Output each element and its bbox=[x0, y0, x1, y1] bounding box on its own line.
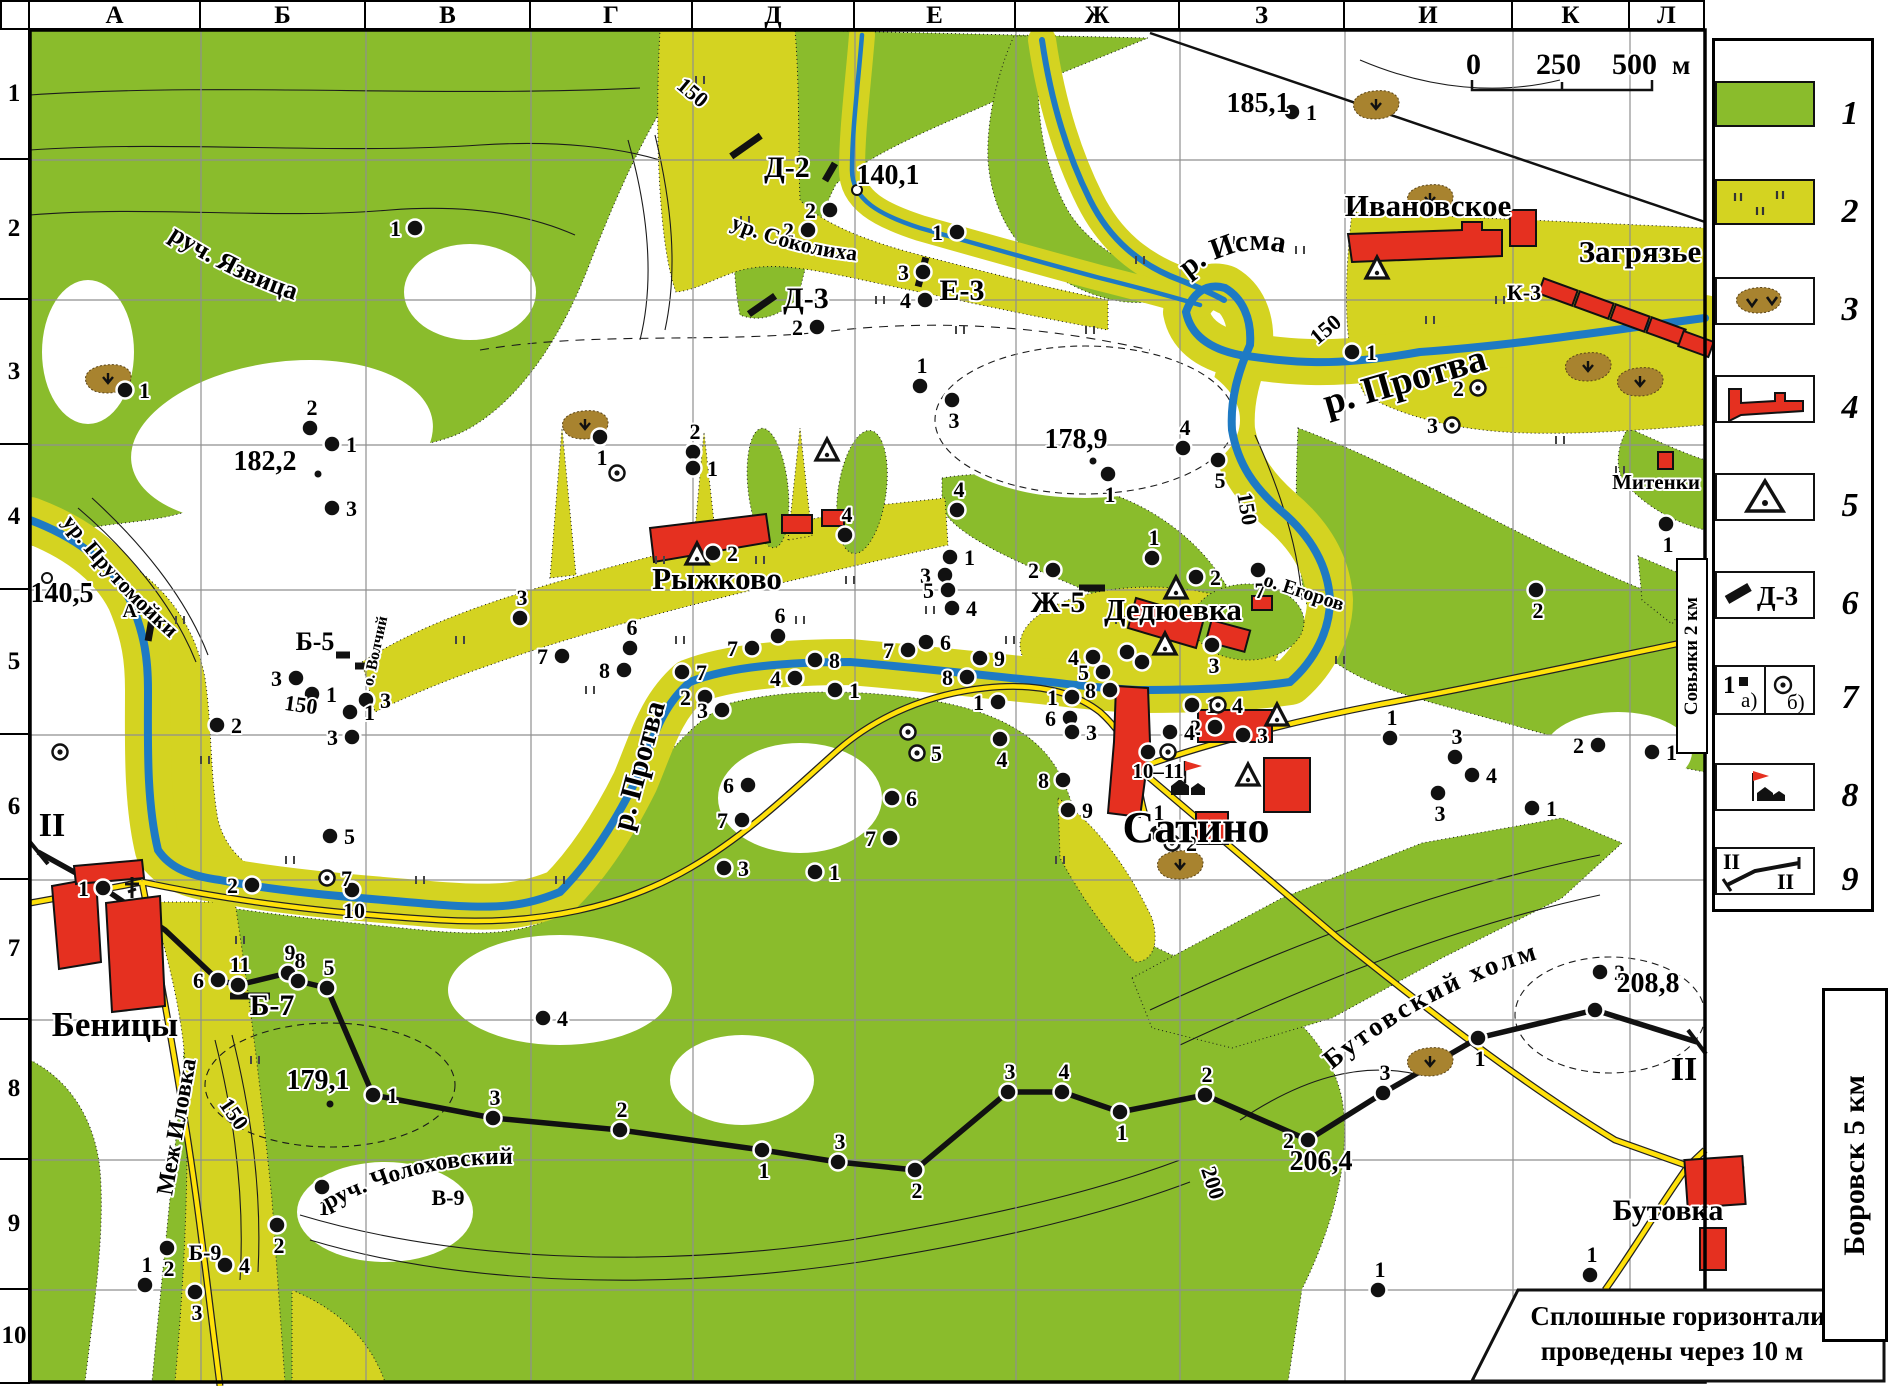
row-header-1: 1 bbox=[0, 30, 30, 160]
survey-dot bbox=[1144, 550, 1161, 567]
survey-dot-number: 11 bbox=[230, 952, 251, 977]
survey-dot bbox=[1464, 767, 1481, 784]
survey-dot bbox=[959, 669, 976, 686]
survey-dot bbox=[324, 500, 341, 517]
survey-dot-number: 10 bbox=[343, 898, 365, 923]
survey-dot-number: 3 bbox=[517, 585, 528, 610]
profile-swatch: IIII bbox=[1729, 857, 1829, 903]
survey-dot bbox=[1524, 800, 1541, 817]
circle-dot-number: 3 bbox=[1427, 413, 1438, 438]
survey-dot bbox=[714, 702, 731, 719]
survey-dot bbox=[485, 1110, 502, 1127]
survey-dot bbox=[830, 1154, 847, 1171]
survey-dot-number: 1 bbox=[759, 1158, 770, 1183]
site-code-label: Е-3 bbox=[940, 274, 985, 307]
survey-dot-number: 2 bbox=[805, 198, 816, 223]
survey-dot bbox=[1470, 1030, 1487, 1047]
legend-num-5: 5 bbox=[1829, 487, 1871, 525]
survey-dot bbox=[1250, 562, 1267, 579]
survey-dot bbox=[1000, 1084, 1017, 1101]
legend-num-8: 8 bbox=[1829, 777, 1871, 815]
grid-corner bbox=[0, 0, 30, 30]
col-header-b: Б bbox=[201, 0, 366, 30]
survey-dot-number: 6 bbox=[627, 615, 638, 640]
note-line-2: проведены через 10 м bbox=[1541, 1336, 1804, 1366]
geodetic-point-dot bbox=[1375, 271, 1379, 275]
survey-dot bbox=[209, 717, 226, 734]
survey-dot-number: 2 bbox=[274, 1233, 285, 1258]
survey-dot-number: 1 bbox=[139, 378, 150, 403]
survey-dot-number: 7 bbox=[865, 826, 876, 851]
legend-num-9: 9 bbox=[1829, 861, 1871, 899]
survey-dot-number: 4 bbox=[900, 288, 911, 313]
survey-dot bbox=[1134, 654, 1151, 671]
survey-dot-number: 4 bbox=[966, 596, 977, 621]
survey-dot-number: 6 bbox=[723, 773, 734, 798]
circle-dot-center bbox=[57, 749, 62, 754]
survey-dot-number: 6 bbox=[1045, 706, 1056, 731]
survey-dot bbox=[1055, 772, 1072, 789]
survey-dot bbox=[807, 652, 824, 669]
survey-dot-number: 2 bbox=[680, 685, 691, 710]
elevation-dot bbox=[327, 1101, 334, 1108]
row-header-3: 3 bbox=[0, 300, 30, 445]
row-header-9: 9 bbox=[0, 1160, 30, 1290]
survey-dot-number: 8 bbox=[1038, 768, 1049, 793]
circle-dot-number: 5 bbox=[931, 741, 942, 766]
survey-dot-number: 3 bbox=[1257, 723, 1268, 748]
survey-dot-number: 4 bbox=[954, 477, 965, 502]
legend-panel: 1 2 3 4 5 Д-3 6 1а)б) 7 8 IIII 9 bbox=[1712, 38, 1874, 912]
col-header-a: А bbox=[30, 0, 201, 30]
survey-dot bbox=[288, 670, 305, 687]
row-header-2: 2 bbox=[0, 160, 30, 300]
survey-dot-number: 1 bbox=[142, 1252, 153, 1277]
borovsk-direction-box: Боровск 5 км bbox=[1822, 988, 1888, 1342]
survey-dot bbox=[302, 420, 319, 437]
survey-dot bbox=[1207, 719, 1224, 736]
survey-dot bbox=[944, 600, 961, 617]
survey-dot bbox=[1140, 744, 1157, 761]
site-code-label: Д-2 bbox=[764, 151, 810, 184]
site-code-label: В-9 bbox=[432, 1185, 465, 1210]
survey-dot-number: 8 bbox=[295, 948, 306, 973]
topographic-map-page: IIII 12213421121311121134451241354212372… bbox=[0, 0, 1889, 1386]
survey-dot bbox=[1370, 1282, 1387, 1299]
survey-dot bbox=[1060, 802, 1077, 819]
survey-dot bbox=[754, 1142, 771, 1159]
survey-dot bbox=[622, 640, 639, 657]
legend-item-outcrop: Д-3 6 bbox=[1715, 571, 1871, 637]
legend-item-forest: 1 bbox=[1715, 81, 1871, 147]
survey-dot-number: 8 bbox=[829, 648, 840, 673]
survey-dot-number: 1 bbox=[1105, 482, 1116, 507]
survey-dot-number: 3 bbox=[1209, 653, 1220, 678]
survey-dot-number: 2 bbox=[617, 1097, 628, 1122]
elevation-label: 179,1 bbox=[287, 1065, 350, 1096]
col-header-d: Д bbox=[693, 0, 855, 30]
survey-dot bbox=[1658, 516, 1675, 533]
survey-dot bbox=[187, 1284, 204, 1301]
survey-dot-number: 1 bbox=[1587, 1242, 1598, 1267]
elevation-label: 182,2 bbox=[234, 446, 297, 477]
field-178-9 bbox=[930, 342, 1240, 498]
settlement-label: Беницы bbox=[52, 1005, 179, 1044]
row-header-4: 4 bbox=[0, 445, 30, 590]
survey-dot bbox=[1204, 637, 1221, 654]
legend-item-pit: 3 bbox=[1715, 277, 1871, 343]
col-header-e: Е bbox=[855, 0, 1016, 30]
survey-dot-number: 4 bbox=[997, 747, 1008, 772]
survey-dot bbox=[942, 549, 959, 566]
settlement-label: Митенки bbox=[1612, 470, 1700, 494]
survey-dot-number: 1 bbox=[1366, 340, 1377, 365]
survey-dot bbox=[1100, 466, 1117, 483]
survey-dot-number: 2 bbox=[307, 395, 318, 420]
survey-dot-number: 3 bbox=[271, 666, 282, 691]
settlement-label: Рыжково bbox=[652, 561, 782, 596]
survey-dot bbox=[1162, 724, 1179, 741]
survey-dot bbox=[365, 1087, 382, 1104]
legend-num-4: 4 bbox=[1829, 389, 1871, 427]
scale-unit: м bbox=[1672, 50, 1690, 80]
sovyaki-label: Совьяки 2 км bbox=[1681, 597, 1703, 715]
geodetic-point-dot bbox=[1163, 647, 1167, 651]
survey-dot bbox=[1184, 697, 1201, 714]
row-header-5: 5 bbox=[0, 590, 30, 735]
survey-dot bbox=[1197, 1087, 1214, 1104]
settlement-label: Загрязье bbox=[1579, 234, 1702, 269]
survey-dot-number: 3 bbox=[1435, 801, 1446, 826]
survey-dot bbox=[322, 828, 339, 845]
survey-dot-number: 1 bbox=[346, 432, 357, 457]
circle-dot-number: 7 bbox=[341, 866, 352, 891]
survey-dot-number: 1 bbox=[1375, 1257, 1386, 1282]
survey-dot-number: 3 bbox=[697, 698, 708, 723]
survey-dot-number: 1 bbox=[1387, 705, 1398, 730]
survey-dot bbox=[95, 880, 112, 897]
survey-dot-number: 1 bbox=[707, 456, 718, 481]
survey-dot bbox=[884, 790, 901, 807]
survey-dot bbox=[407, 220, 424, 237]
survey-dot bbox=[319, 980, 336, 997]
survey-dot-number: 6 bbox=[906, 786, 917, 811]
survey-dot bbox=[342, 704, 359, 721]
survey-dot-number: 2 bbox=[792, 315, 803, 340]
outcrop-bar-icon bbox=[336, 652, 350, 659]
legend-item-meadow: 2 bbox=[1715, 179, 1871, 245]
survey-dot-number: 3 bbox=[835, 1129, 846, 1154]
survey-dot bbox=[244, 877, 261, 894]
survey-dot-number: 3 bbox=[898, 260, 909, 285]
survey-dot-number: 2 bbox=[690, 419, 701, 444]
row-header-10: 10 bbox=[0, 1290, 30, 1384]
survey-dot bbox=[616, 662, 633, 679]
survey-dot bbox=[1447, 749, 1464, 766]
borovsk-label: Боровск 5 км bbox=[1838, 1075, 1872, 1256]
survey-dot bbox=[907, 1162, 924, 1179]
survey-dot bbox=[210, 972, 227, 989]
survey-dot-number: 2 bbox=[227, 873, 238, 898]
survey-dot bbox=[949, 502, 966, 519]
contour-label: 150 bbox=[283, 690, 319, 719]
survey-dot-number: 1 bbox=[1475, 1046, 1486, 1071]
survey-dot-number: 1 bbox=[964, 545, 975, 570]
elevation-label: 206,4 bbox=[1290, 1146, 1353, 1177]
survey-dot-number: 5 bbox=[324, 955, 335, 980]
survey-dot bbox=[1344, 344, 1361, 361]
survey-dot-number: 7 bbox=[696, 660, 707, 685]
survey-dot bbox=[1112, 1104, 1129, 1121]
survey-dot bbox=[809, 319, 826, 336]
legend-b-label: б) bbox=[1787, 690, 1805, 714]
survey-dot bbox=[1054, 1084, 1071, 1101]
survey-dot bbox=[990, 694, 1007, 711]
legend-d3-label: Д-3 bbox=[1757, 581, 1798, 611]
survey-dot bbox=[290, 973, 307, 990]
profile-ii-start: II bbox=[39, 807, 65, 844]
legend-ii-start: II bbox=[1723, 849, 1740, 874]
legend-item-profile: IIII 9 bbox=[1715, 847, 1871, 913]
survey-dot-number: 7 bbox=[883, 638, 894, 663]
survey-dot-number: 9 bbox=[1082, 798, 1093, 823]
survey-dot bbox=[554, 648, 571, 665]
survey-dot-number: 1 bbox=[1306, 100, 1317, 125]
survey-dot-number: 3 bbox=[490, 1085, 501, 1110]
survey-dot bbox=[685, 460, 702, 477]
survey-dot bbox=[822, 202, 839, 219]
survey-dot bbox=[1587, 1002, 1604, 1019]
site-code-label: Д-3 bbox=[783, 282, 829, 315]
site-code-label: Б-7 bbox=[250, 989, 295, 1022]
survey-dot-number: 5 bbox=[344, 824, 355, 849]
survey-dot bbox=[1045, 562, 1062, 579]
legend-num-6: 6 bbox=[1829, 585, 1871, 623]
survey-dot-number: 1 bbox=[364, 700, 375, 725]
survey-dot-number: 6 bbox=[940, 630, 951, 655]
settlement-swatch bbox=[1729, 385, 1829, 431]
survey-dot bbox=[1210, 452, 1227, 469]
points-swatch: 1а)б) bbox=[1729, 675, 1829, 721]
survey-dot bbox=[269, 1217, 286, 1234]
survey-dot bbox=[1644, 744, 1661, 761]
survey-dot-number: 3 bbox=[1452, 724, 1463, 749]
survey-dot bbox=[1119, 644, 1136, 661]
survey-dot-number: 3 bbox=[1380, 1060, 1391, 1085]
scale-250: 250 bbox=[1536, 48, 1581, 81]
survey-dot-number: 1 bbox=[917, 353, 928, 378]
survey-dot bbox=[972, 650, 989, 667]
camp-swatch bbox=[1729, 773, 1829, 819]
survey-dot bbox=[940, 582, 957, 599]
survey-dot-number: 1 bbox=[326, 682, 337, 707]
survey-dot bbox=[674, 664, 691, 681]
scale-500: 500 bbox=[1612, 48, 1657, 81]
survey-dot-number: 1 bbox=[1149, 525, 1160, 550]
survey-dot-number: 3 bbox=[346, 496, 357, 521]
column-header: А Б В Г Д Е Ж З И К Л bbox=[0, 0, 1705, 30]
col-header-g: Г bbox=[531, 0, 693, 30]
survey-dot bbox=[912, 378, 929, 395]
survey-dot bbox=[1582, 1267, 1599, 1284]
legend-item-settlement: 4 bbox=[1715, 375, 1871, 441]
survey-dot bbox=[324, 436, 341, 453]
survey-dot bbox=[917, 292, 934, 309]
geodetic-point-dot bbox=[1246, 778, 1250, 782]
row-header-7: 7 bbox=[0, 880, 30, 1020]
survey-dot bbox=[535, 1010, 552, 1027]
circle-dot-center bbox=[1449, 422, 1454, 427]
col-header-z: З bbox=[1180, 0, 1345, 30]
survey-dot bbox=[949, 224, 966, 241]
circle-dot-center bbox=[1215, 702, 1220, 707]
survey-dot-number: 7 bbox=[717, 808, 728, 833]
survey-dot-number: 4 bbox=[1486, 763, 1497, 788]
survey-dot-number: 4 bbox=[770, 666, 781, 691]
site-code-label: К-3 bbox=[1507, 280, 1541, 305]
col-header-i: И bbox=[1345, 0, 1513, 30]
survey-dot-number: 2 bbox=[1533, 598, 1544, 623]
survey-dot-number: 4 bbox=[557, 1006, 568, 1031]
survey-dot-number: 3 bbox=[192, 1300, 203, 1325]
settlement-label: Сатино bbox=[1123, 803, 1270, 852]
survey-dot bbox=[1102, 682, 1119, 699]
survey-dot bbox=[137, 1277, 154, 1294]
survey-dot-number: 2 bbox=[1202, 1062, 1213, 1087]
settlement-label: Бутовка bbox=[1613, 1194, 1724, 1227]
site-code-label: Б-5 bbox=[296, 627, 335, 656]
survey-dot bbox=[230, 977, 247, 994]
survey-dot-number: 2 bbox=[1573, 733, 1584, 758]
legend-point-number: 1 bbox=[1723, 672, 1736, 699]
survey-dot bbox=[716, 860, 733, 877]
survey-dot bbox=[1235, 727, 1252, 744]
legend-item-base-camp: 8 bbox=[1715, 763, 1871, 829]
survey-dot-number: 1 bbox=[932, 220, 943, 245]
map-canvas: IIII 12213421121311121134451241354212372… bbox=[0, 0, 1889, 1386]
legend-item-points: 1а)б) 7 bbox=[1715, 665, 1871, 731]
survey-dot-number: 4 bbox=[239, 1253, 250, 1278]
survey-dot bbox=[827, 682, 844, 699]
survey-dot bbox=[740, 777, 757, 794]
legend-item-geodetic-point: 5 bbox=[1715, 473, 1871, 539]
survey-dot bbox=[1064, 689, 1081, 706]
triangle-swatch bbox=[1729, 483, 1829, 529]
survey-dot-number: 1 bbox=[387, 1083, 398, 1108]
scale-0: 0 bbox=[1466, 48, 1481, 81]
site-code-label: Б-9 bbox=[189, 1240, 222, 1265]
legend-num-7: 7 bbox=[1829, 679, 1871, 717]
survey-dot-number: 3 bbox=[380, 688, 391, 713]
survey-dot bbox=[592, 429, 609, 446]
elevation-label: 140,1 bbox=[857, 160, 920, 191]
legend-num-3: 3 bbox=[1829, 291, 1871, 329]
row-header-6: 6 bbox=[0, 735, 30, 880]
settlement-label: Дедюевка bbox=[1104, 592, 1242, 627]
survey-dot bbox=[512, 610, 529, 627]
elevation-dot bbox=[315, 471, 322, 478]
survey-dot bbox=[1095, 664, 1112, 681]
survey-dot-number: 2 bbox=[1028, 558, 1039, 583]
survey-dot bbox=[1592, 964, 1609, 981]
elevation-dot bbox=[1090, 458, 1097, 465]
survey-dot bbox=[915, 264, 932, 281]
elevation-label: 140,5 bbox=[31, 578, 94, 609]
survey-dot-number: 2 bbox=[912, 1178, 923, 1203]
survey-dot-number: 7 bbox=[727, 636, 738, 661]
survey-dot-number: 2 bbox=[1210, 565, 1221, 590]
survey-dot bbox=[612, 1122, 629, 1139]
survey-dot-number: 1 bbox=[597, 445, 608, 470]
pit-swatch bbox=[1729, 287, 1829, 333]
survey-dot-number: 3 bbox=[1086, 720, 1097, 745]
survey-dot bbox=[1175, 440, 1192, 457]
legend-a-label: а) bbox=[1741, 688, 1757, 712]
legend-ii-end: II bbox=[1777, 869, 1794, 894]
survey-dot bbox=[117, 382, 134, 399]
survey-dot bbox=[705, 545, 722, 562]
survey-dot-number: 2 bbox=[164, 1256, 175, 1281]
survey-dot-number: 4 bbox=[842, 502, 853, 527]
survey-dot bbox=[882, 830, 899, 847]
survey-dot-number: 4 bbox=[1180, 415, 1191, 440]
survey-dot-number: 6 bbox=[775, 603, 786, 628]
survey-dot-number: 3 bbox=[949, 408, 960, 433]
legend-num-2: 2 bbox=[1829, 193, 1871, 231]
survey-dot bbox=[1375, 1085, 1392, 1102]
survey-dot bbox=[1430, 785, 1447, 802]
survey-dot-number: 4 bbox=[1184, 720, 1195, 745]
circle-dot-number: 4 bbox=[1232, 693, 1243, 718]
elevation-label: 178,9 bbox=[1045, 424, 1108, 455]
note-line-1: Сплошные горизонтали bbox=[1530, 1301, 1825, 1331]
circle-dot-center bbox=[1165, 749, 1170, 754]
survey-dot-number: 8 bbox=[599, 658, 610, 683]
survey-dot-number: 1 bbox=[78, 876, 89, 901]
survey-dot-number: 1 bbox=[1117, 1120, 1128, 1145]
survey-dot-number: 8 bbox=[942, 665, 953, 690]
survey-dot bbox=[918, 634, 935, 651]
col-header-zh: Ж bbox=[1016, 0, 1180, 30]
survey-dot bbox=[807, 864, 824, 881]
survey-dot-number: 5 bbox=[923, 578, 934, 603]
survey-dot bbox=[900, 642, 917, 659]
row-header-8: 8 bbox=[0, 1020, 30, 1160]
circle-dot-center bbox=[905, 729, 910, 734]
survey-dot bbox=[1528, 582, 1545, 599]
site-code-label: Ж-5 bbox=[1031, 586, 1086, 619]
survey-dot-number: 1 bbox=[829, 860, 840, 885]
survey-dot-number: 6 bbox=[193, 968, 204, 993]
circle-dot-center bbox=[614, 470, 619, 475]
point-range-label: 10–11 bbox=[1132, 759, 1183, 783]
survey-dot-number: 3 bbox=[327, 725, 338, 750]
sovyaki-direction-box: Совьяки 2 км bbox=[1676, 558, 1708, 754]
survey-dot bbox=[1590, 737, 1607, 754]
circle-dot-center bbox=[914, 750, 919, 755]
survey-dot-number: 1 bbox=[973, 690, 984, 715]
survey-dot bbox=[734, 812, 751, 829]
survey-dot bbox=[685, 444, 702, 461]
survey-dot bbox=[1188, 569, 1205, 586]
meadow-swatch bbox=[1729, 189, 1829, 235]
survey-dot bbox=[770, 628, 787, 645]
circle-dot-center bbox=[1475, 385, 1480, 390]
survey-dot-number: 8 bbox=[1085, 678, 1096, 703]
survey-dot-number: 1 bbox=[390, 216, 401, 241]
survey-dot bbox=[159, 1240, 176, 1257]
survey-dot-number: 1 bbox=[849, 678, 860, 703]
